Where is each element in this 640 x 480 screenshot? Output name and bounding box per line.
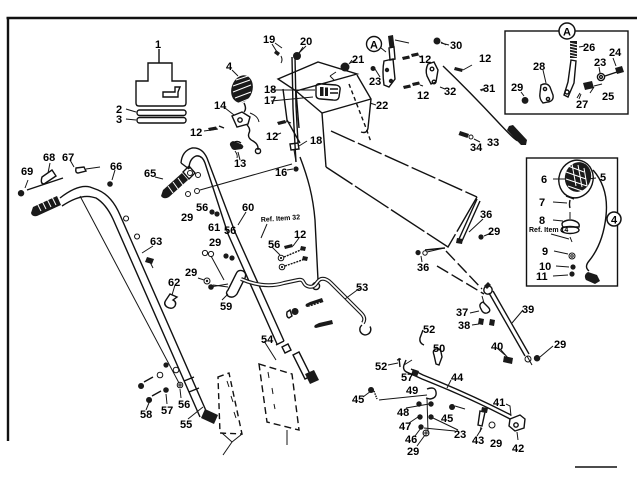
svg-text:34: 34: [470, 142, 483, 154]
svg-text:44: 44: [451, 372, 464, 384]
svg-text:3: 3: [116, 114, 122, 126]
svg-text:57: 57: [401, 372, 413, 384]
svg-text:29: 29: [554, 339, 566, 351]
svg-text:56: 56: [196, 202, 208, 214]
svg-text:12: 12: [417, 90, 429, 102]
svg-text:56: 56: [268, 239, 280, 251]
svg-text:49: 49: [406, 385, 418, 397]
svg-text:56: 56: [178, 399, 190, 411]
svg-text:45: 45: [352, 394, 364, 406]
svg-text:29: 29: [185, 267, 197, 279]
svg-text:12: 12: [294, 229, 306, 241]
svg-text:4: 4: [226, 61, 233, 73]
svg-text:1: 1: [155, 39, 161, 51]
svg-text:42: 42: [512, 443, 524, 455]
svg-text:65: 65: [144, 168, 156, 180]
svg-text:8: 8: [539, 215, 545, 227]
svg-text:22: 22: [376, 100, 388, 112]
svg-text:28: 28: [533, 61, 545, 73]
svg-text:36: 36: [480, 209, 492, 221]
svg-text:58: 58: [140, 409, 152, 421]
svg-text:32: 32: [444, 86, 456, 98]
svg-text:29: 29: [490, 438, 502, 450]
svg-text:12: 12: [479, 53, 491, 65]
svg-text:23: 23: [594, 57, 606, 69]
svg-text:43: 43: [472, 435, 484, 447]
svg-text:53: 53: [356, 282, 368, 294]
svg-text:50: 50: [433, 343, 445, 355]
svg-text:33: 33: [487, 137, 499, 149]
svg-text:39: 39: [522, 304, 534, 316]
svg-text:Ref. Item 14: Ref. Item 14: [529, 227, 568, 234]
svg-text:57: 57: [161, 405, 173, 417]
svg-text:29: 29: [181, 212, 193, 224]
svg-text:14: 14: [214, 100, 227, 112]
svg-text:48: 48: [397, 407, 409, 419]
svg-text:55: 55: [180, 419, 192, 431]
svg-text:26: 26: [583, 42, 595, 54]
svg-text:18: 18: [310, 135, 322, 147]
svg-text:25: 25: [602, 91, 614, 103]
svg-text:66: 66: [110, 161, 122, 173]
svg-text:4: 4: [611, 215, 618, 227]
svg-text:16: 16: [275, 167, 287, 179]
svg-text:69: 69: [21, 166, 33, 178]
svg-text:68: 68: [43, 152, 55, 164]
svg-text:29: 29: [407, 446, 419, 458]
svg-text:41: 41: [493, 397, 505, 409]
svg-text:9: 9: [542, 246, 548, 258]
svg-text:5: 5: [600, 172, 606, 184]
svg-text:A: A: [563, 27, 571, 39]
svg-text:24: 24: [609, 47, 622, 59]
svg-text:30: 30: [450, 40, 462, 52]
svg-text:29: 29: [488, 226, 500, 238]
svg-text:29: 29: [209, 237, 221, 249]
svg-text:61: 61: [208, 222, 220, 234]
svg-text:37: 37: [456, 307, 468, 319]
svg-text:19: 19: [263, 34, 275, 46]
svg-text:52: 52: [423, 324, 435, 336]
svg-text:62: 62: [168, 277, 180, 289]
svg-text:47: 47: [399, 421, 411, 433]
svg-text:45: 45: [441, 413, 453, 425]
svg-text:7: 7: [539, 197, 545, 209]
svg-text:60: 60: [242, 202, 254, 214]
svg-text:29: 29: [511, 82, 523, 94]
svg-text:12: 12: [190, 127, 202, 139]
svg-text:6: 6: [541, 174, 547, 186]
svg-text:36: 36: [417, 262, 429, 274]
svg-text:52: 52: [375, 361, 387, 373]
svg-text:38: 38: [458, 320, 470, 332]
svg-text:11: 11: [536, 271, 548, 283]
svg-text:23: 23: [454, 429, 466, 441]
svg-text:21: 21: [352, 54, 364, 66]
svg-text:12: 12: [419, 54, 431, 66]
svg-text:12: 12: [266, 131, 278, 143]
svg-text:23: 23: [369, 76, 381, 88]
svg-text:67: 67: [62, 152, 74, 164]
svg-text:54: 54: [261, 334, 274, 346]
svg-text:A: A: [370, 40, 378, 52]
svg-text:59: 59: [220, 301, 232, 313]
svg-text:27: 27: [576, 99, 588, 111]
svg-text:56: 56: [224, 225, 236, 237]
svg-text:46: 46: [405, 434, 417, 446]
